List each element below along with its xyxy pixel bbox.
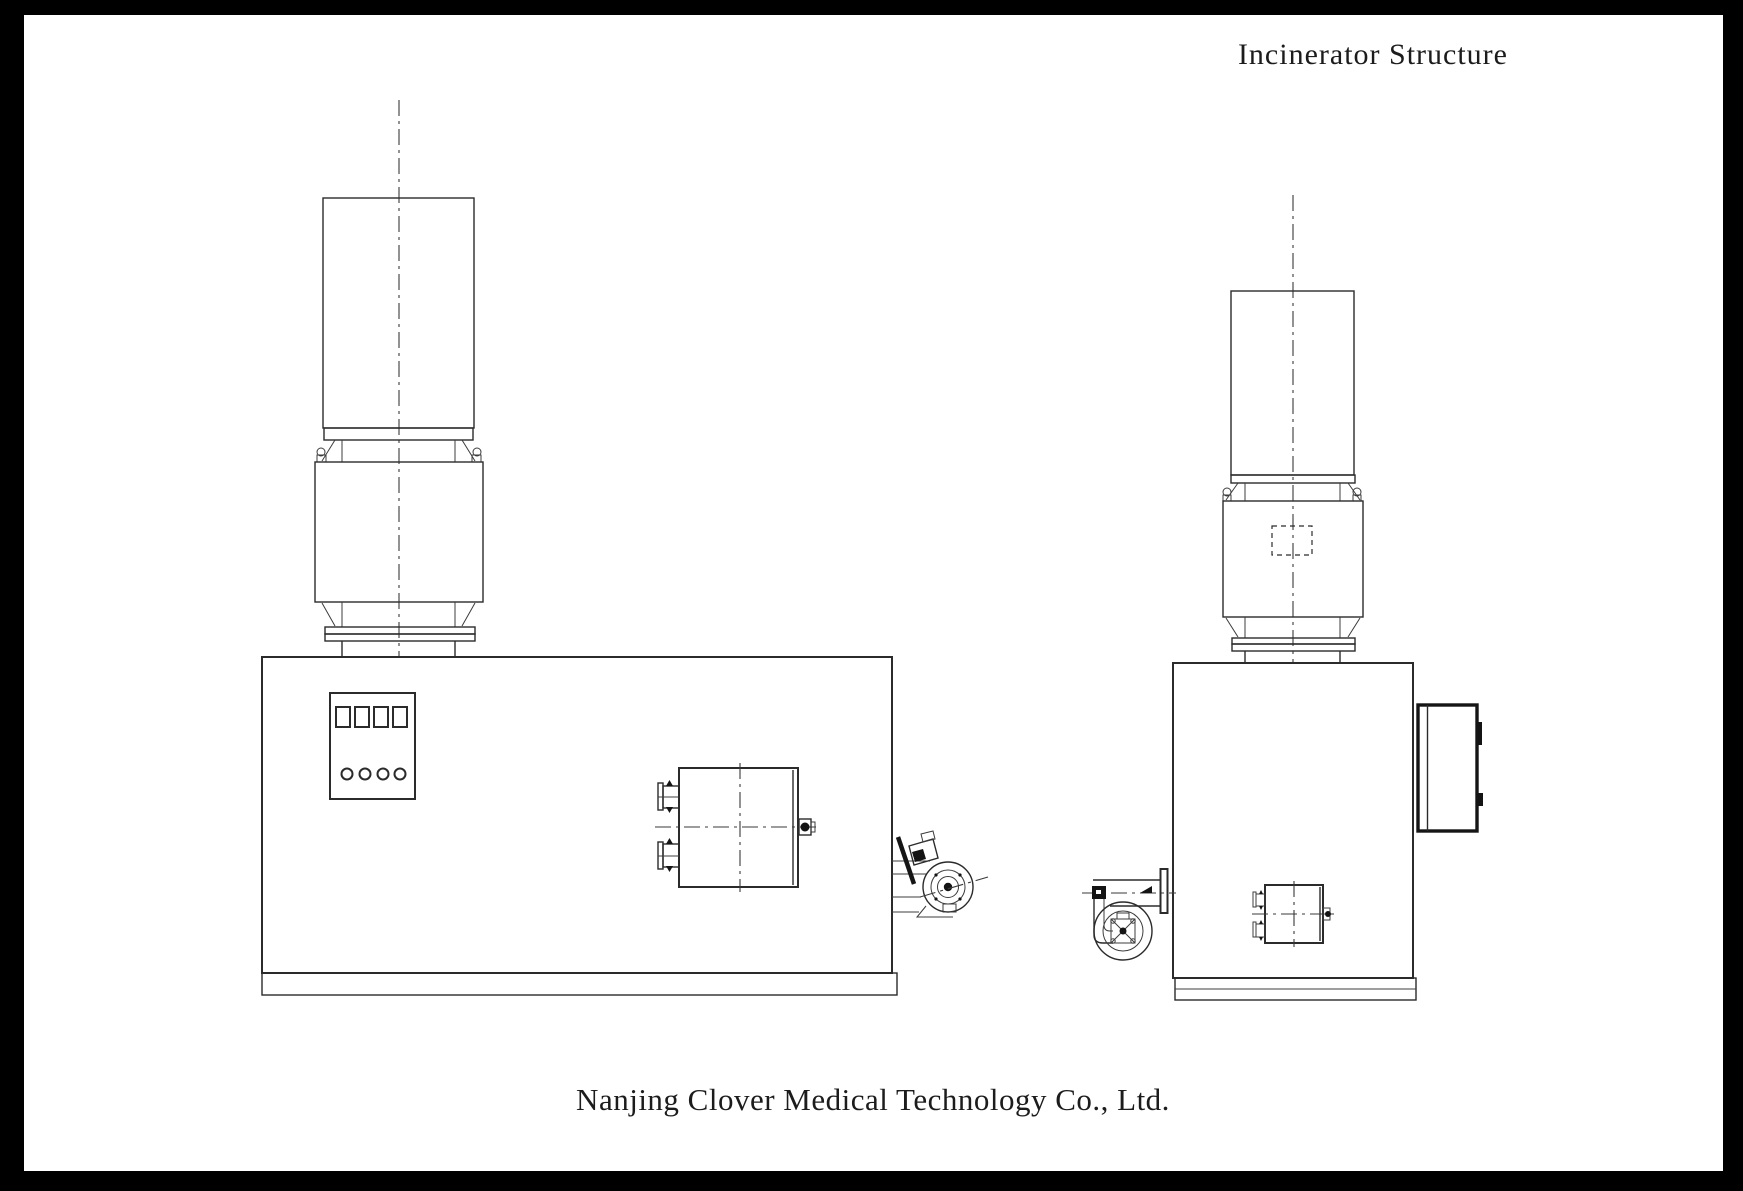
- panel-lamp-4: [395, 769, 406, 780]
- right-upper-joint-left: [1226, 483, 1245, 501]
- left-lower-flange-bottom: [325, 634, 475, 641]
- control-panel: [330, 693, 415, 799]
- right-upper-joint-right: [1340, 483, 1360, 501]
- panel-switch-4[interactable]: [393, 707, 407, 727]
- company-caption: Nanjing Clover Medical Technology Co., L…: [576, 1082, 1170, 1118]
- right-burner: [1252, 881, 1338, 947]
- right-burner-nozzle-upper: [1253, 890, 1265, 910]
- right-burner-nozzle-lower: [1253, 920, 1265, 941]
- side-access-door: [1418, 705, 1483, 831]
- panel-switch-1[interactable]: [336, 707, 350, 727]
- blower-duct-fitting: [1140, 886, 1152, 893]
- left-lower-joint-left: [322, 602, 342, 627]
- door-hinge-lower: [1476, 793, 1483, 806]
- blower-inlet-pipe: [1092, 886, 1113, 943]
- left-lower-joint-right: [455, 602, 475, 627]
- fan-duct-lower: [892, 897, 921, 912]
- door-hinge-upper: [1476, 722, 1482, 745]
- right-blower: [1082, 869, 1176, 960]
- panel-lamp-2: [360, 769, 371, 780]
- right-incinerator-side-view: [1082, 195, 1483, 1000]
- blower-flange: [1161, 869, 1168, 913]
- panel-switch-3[interactable]: [374, 707, 388, 727]
- burner-nozzle-lower: [658, 838, 679, 872]
- panel-lamp-3: [378, 769, 389, 780]
- right-lower-joint-left: [1226, 617, 1245, 638]
- left-draft-fan: [892, 831, 988, 917]
- left-lug-right: [472, 448, 481, 462]
- incinerator-drawing: [0, 0, 1743, 1191]
- drawing-sheet: Incinerator Structure Nanjing Clover Med…: [0, 0, 1743, 1191]
- blower-hub: [1111, 913, 1135, 943]
- left-body-base-skid: [262, 973, 897, 995]
- fan-hub: [944, 883, 952, 891]
- left-incinerator-front-view: [262, 100, 988, 995]
- left-lug-left: [317, 448, 326, 462]
- burner-nozzle-upper: [658, 780, 679, 813]
- panel-lamp-1: [342, 769, 353, 780]
- left-burner: [655, 763, 820, 892]
- right-lower-joint-right: [1340, 617, 1360, 638]
- drawing-title: Incinerator Structure: [1238, 38, 1508, 72]
- control-panel-box: [330, 693, 415, 799]
- left-lower-flange-top: [325, 627, 475, 634]
- right-body-shell: [1173, 663, 1413, 978]
- fan-motor-core: [912, 849, 926, 862]
- panel-switch-2[interactable]: [355, 707, 369, 727]
- hidden-inspection-port: [1272, 526, 1312, 555]
- fan-axis-centerline: [920, 877, 988, 897]
